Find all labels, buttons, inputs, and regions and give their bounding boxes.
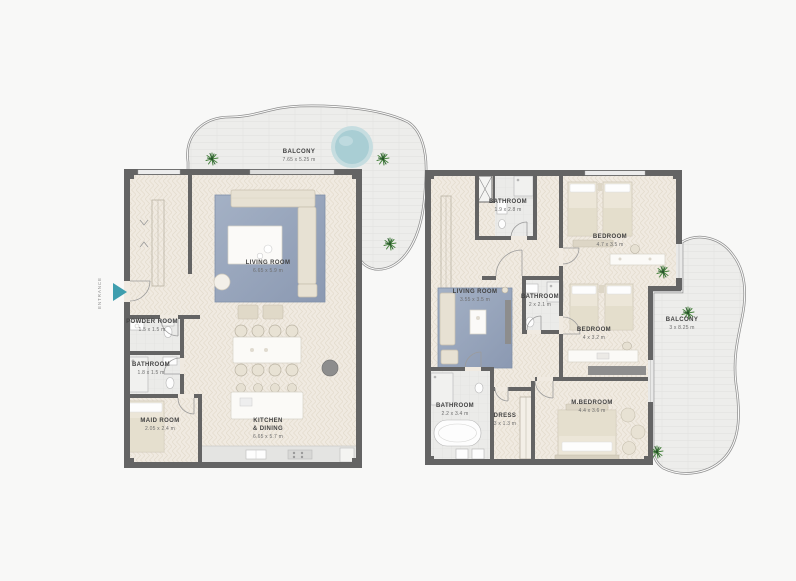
- master-bedroom-furniture: [555, 404, 645, 460]
- right-floor-plan-graphic: [415, 160, 750, 480]
- entrance-label: ENTRANCE: [97, 275, 102, 309]
- floorplan-sheet: BALCONY 7.65 x 5.25 m LIVING ROOM 6.65 x…: [0, 0, 796, 581]
- shaft: [478, 176, 492, 202]
- bathroom-master-fixtures: [429, 371, 490, 460]
- kitchen-counter: [200, 446, 357, 463]
- right-living-furniture: [438, 287, 512, 368]
- bathroom-mid-fixtures: [522, 280, 563, 334]
- side-table: [322, 360, 338, 376]
- left-floor-plan-graphic: [100, 100, 450, 480]
- right-unit-interior: [425, 170, 682, 465]
- maid-room-bed: [127, 401, 164, 452]
- pool: [331, 126, 373, 168]
- bathroom-fixtures: [128, 355, 180, 394]
